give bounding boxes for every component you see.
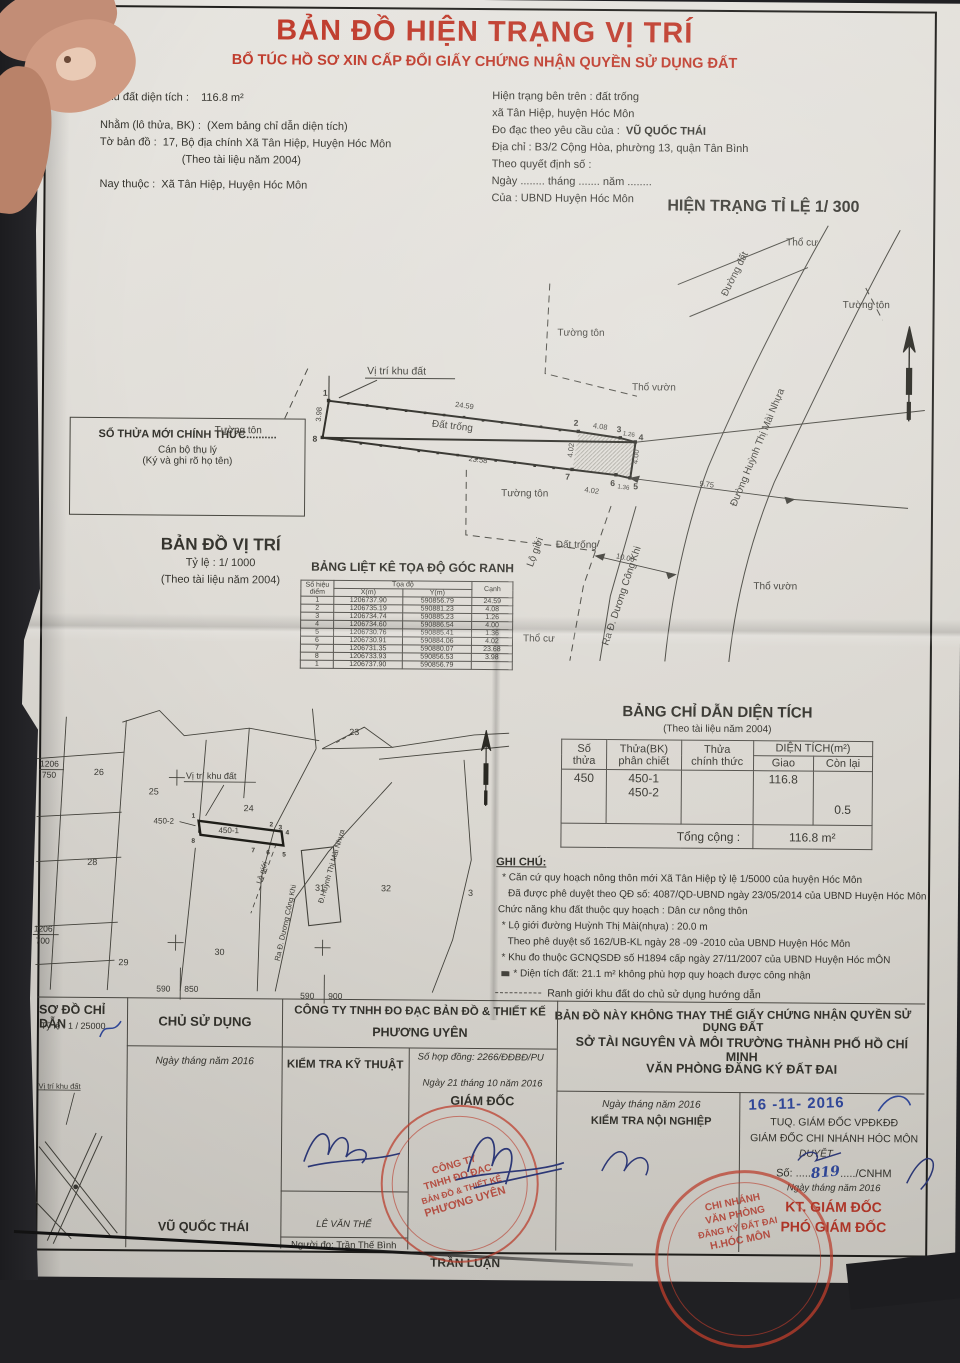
- location-map-note: (Theo tài liệu năm 2004): [110, 571, 330, 590]
- legend-square-icon: [501, 971, 509, 976]
- coord-h-edge: Cạnh: [472, 581, 513, 597]
- svg-text:Tường tôn: Tường tôn: [843, 300, 890, 311]
- svg-text:24.59: 24.59: [455, 400, 475, 411]
- svg-text:8: 8: [191, 838, 195, 845]
- signature-margin-mark: [901, 1131, 953, 1193]
- signature-internal-check: [596, 1133, 671, 1184]
- area-cell-bk1: 450-1: [628, 771, 659, 785]
- svg-text:4.02: 4.02: [565, 442, 576, 458]
- note-line: * Diện tích đất: 21.1 m² không phù hợp q…: [513, 968, 810, 981]
- request-label: Đo đạc theo yêu cầu của :: [492, 124, 620, 137]
- requester-name: VŨ QUỐC THÁI: [626, 125, 706, 138]
- svg-text:700: 700: [36, 936, 51, 946]
- area-value: 116.8 m²: [201, 92, 244, 104]
- svg-text:5: 5: [282, 851, 286, 858]
- north-arrow-icon: [481, 730, 491, 806]
- svg-text:3: 3: [468, 888, 473, 898]
- official-parcel-number-box: SỐ THỬA MỚI CHÍNH THỨC.......... Cán bộ …: [69, 417, 306, 517]
- index-sketch-label: Vị trí khu đất: [38, 1082, 81, 1091]
- parcel-info-left: Khu đất diện tích : 116.8 m² Nhằm (lô th…: [99, 89, 500, 196]
- svg-text:24: 24: [244, 803, 254, 813]
- location-map-title: BẢN ĐỒ VỊ TRÍ: [111, 534, 331, 556]
- official-box-title: SỐ THỬA MỚI CHÍNH THỨC..........: [71, 428, 305, 442]
- document-title: BẢN ĐỒ HIỆN TRẠNG VỊ TRÍ: [175, 14, 795, 52]
- approve-line1: TUQ. GIÁM ĐỐC VPĐKĐĐ: [744, 1116, 924, 1129]
- svg-text:3: 3: [278, 824, 282, 831]
- svg-text:2: 2: [270, 821, 274, 828]
- director-date: Ngày 21 tháng 10 năm 2016: [410, 1077, 554, 1089]
- svg-text:4.08: 4.08: [592, 421, 608, 432]
- svg-text:8: 8: [313, 434, 318, 444]
- area-h: phân chiết: [618, 755, 669, 767]
- coord-cell: 3: [301, 612, 334, 620]
- cadastral-location-map: 123 456 78 26 25 28 29 30 23 24 31 32 3 …: [32, 697, 509, 1006]
- svg-text:1.26: 1.26: [622, 430, 635, 439]
- svg-text:23.58: 23.58: [468, 454, 488, 465]
- scanned-map-document: BẢN ĐỒ HIỆN TRẠNG VỊ TRÍ BỔ TÚC HỒ SƠ XI…: [0, 0, 960, 1284]
- area-cell-ct: [681, 770, 754, 825]
- svg-text:Đường đất: Đường đất: [719, 249, 751, 298]
- area-h: chính thức: [691, 755, 743, 767]
- coord-cell: 1: [300, 660, 333, 668]
- svg-text:6: 6: [610, 478, 615, 488]
- coord-h-point2: điểm: [310, 588, 325, 595]
- svg-text:450-1: 450-1: [218, 826, 239, 835]
- coord-cell: 5: [301, 628, 334, 636]
- notes-block: GHI CHÚ: * Căn cứ quy hoạch nông thôn mớ…: [495, 854, 932, 1004]
- svg-text:850: 850: [184, 984, 199, 994]
- area-h-conlai: Còn lại: [813, 756, 872, 771]
- coord-cell: 4: [301, 620, 334, 628]
- area-h-giao: Giao: [753, 756, 813, 771]
- svg-text:26: 26: [94, 767, 104, 777]
- fingernail-spot: [64, 56, 71, 63]
- svg-text:Đất trống: Đất trống: [431, 418, 473, 435]
- svg-text:4: 4: [639, 432, 644, 442]
- coord-cell: 7: [300, 644, 333, 652]
- owner-header: CHỦ SỬ DỤNG: [129, 1013, 281, 1029]
- area-h: Thửa(BK): [620, 743, 668, 755]
- dept-line2: VĂN PHÒNG ĐĂNG KÝ ĐẤT ĐAI: [561, 1061, 923, 1078]
- index-sketch-site-dot: [73, 1184, 78, 1189]
- area-h-dien-tich: DIỆN TÍCH(m²): [753, 741, 872, 757]
- svg-text:3.98: 3.98: [314, 407, 324, 422]
- sheet-value: 17, Bộ địa chính Xã Tân Hiệp, Huyện Hóc …: [163, 136, 392, 150]
- svg-text:7: 7: [565, 472, 570, 482]
- area-h: Số: [577, 742, 591, 754]
- internal-check-header: KIỂM TRA NỘI NGHIỆP: [566, 1115, 736, 1128]
- svg-text:Vị trí khu đất: Vị trí khu đất: [367, 365, 426, 377]
- owner-name: VŨ QUỐC THÁI: [127, 1219, 279, 1234]
- svg-text:25: 25: [149, 786, 159, 796]
- area-h: Thửa: [704, 743, 730, 755]
- svg-text:Thổ vườn: Thổ vườn: [632, 381, 676, 393]
- sheet-label: Tờ bản đồ :: [100, 136, 157, 148]
- coord-cell: 590856.79: [402, 661, 471, 670]
- grid-coordinate-labels: 1206 750 1206 700 590 850 590 900: [33, 759, 344, 1001]
- parcel-label: Nhằm (lô thửa, BK) :: [100, 119, 201, 132]
- svg-text:9.75: 9.75: [699, 479, 715, 490]
- parcel-value: (Xem bảng chỉ dẫn diện tích): [207, 120, 348, 133]
- location-map-heading: BẢN ĐỒ VỊ TRÍ Tỷ lệ : 1/ 1000 (Theo tài …: [110, 534, 330, 590]
- approve-line2: GIÁM ĐỐC CHI NHÁNH HÓC MÔN: [744, 1132, 924, 1145]
- coord-table: Số hiệu điểm Tọa độ Cạnh X(m) Y(m) 11206…: [300, 580, 514, 671]
- coord-cell: [471, 661, 512, 669]
- area-total-label: Tổng cộng :: [561, 823, 753, 849]
- signature-duyet-check: [796, 1144, 844, 1166]
- signature-director: [444, 1110, 570, 1196]
- cadastral-road-labels: Lộ giới Đ.Huỳnh Thị Mài Nhựa Ra Đ. Dương…: [254, 827, 347, 962]
- svg-text:Lộ giới: Lộ giới: [254, 860, 269, 885]
- sheet-note: (Theo tài liệu năm 2004): [100, 151, 500, 171]
- coord-row: 11206737.90590856.79: [300, 660, 512, 670]
- signature-tech-check: [296, 1107, 407, 1178]
- tech-check-header: KIỂM TRA KỸ THUẬT: [284, 1058, 407, 1071]
- svg-text:23: 23: [349, 727, 359, 737]
- area-cell-conlai: 0.5: [813, 771, 872, 825]
- svg-text:590: 590: [156, 983, 171, 993]
- svg-text:Tường tôn: Tường tôn: [557, 328, 604, 339]
- area-table-title: BẢNG CHỈ DẪN DIỆN TÍCH: [561, 703, 873, 722]
- company-name-line1: CÔNG TY TNHH ĐO ĐẠC BẢN ĐỒ & THIẾT KẾ: [284, 1004, 556, 1018]
- svg-text:Thổ cư: Thổ cư: [523, 632, 555, 644]
- dimension-lines: [595, 476, 794, 580]
- svg-text:29: 29: [118, 957, 128, 967]
- area-cell-giao: 116.8: [753, 771, 814, 825]
- svg-text:1206: 1206: [34, 924, 53, 934]
- svg-text:Đ.Huỳnh Thị Mài Nhựa: Đ.Huỳnh Thị Mài Nhựa: [316, 828, 347, 905]
- svg-text:Đất trống: Đất trống: [556, 539, 597, 551]
- parcel-info-right: Hiện trạng bên trên : đất trống xã Tân H…: [491, 88, 924, 210]
- svg-text:3: 3: [617, 424, 622, 434]
- internal-date: Ngày tháng năm 2016: [566, 1099, 736, 1111]
- now-label: Nay thuộc :: [100, 178, 156, 190]
- north-arrow-icon: [903, 326, 916, 421]
- svg-text:5: 5: [633, 481, 638, 491]
- company-name-line2: PHƯƠNG UYÊN: [284, 1024, 556, 1040]
- svg-text:450-2: 450-2: [154, 816, 175, 825]
- tech-name: LÊ VĂN THẾ: [282, 1218, 405, 1230]
- cadastral-boundaries: [32, 707, 509, 1006]
- coord-table-title: BẢNG LIỆT KÊ TỌA ĐỘ GÓC RANH: [303, 560, 523, 576]
- svg-text:1206: 1206: [40, 759, 59, 769]
- svg-text:4.00: 4.00: [630, 449, 641, 465]
- area-index-table: Sốthửa Thửa(BK)phân chiết Thửachính thức…: [560, 739, 873, 850]
- svg-text:Lộ giới: Lộ giới: [525, 536, 546, 568]
- svg-text:Thổ cư: Thổ cư: [786, 236, 818, 248]
- office-stamp-text: CHI NHÁNH VĂN PHÒNG ĐĂNG KÝ ĐẤT ĐAI H.HÓ…: [643, 1158, 846, 1361]
- disclaimer-line: BẢN ĐỒ NÀY KHÔNG THAY THẾ GIẤY CHỨNG NHẬ…: [537, 1009, 929, 1034]
- svg-text:Vị trí khu đất: Vị trí khu đất: [186, 771, 237, 781]
- index-sketch-map: Vị trí khu đất: [33, 1037, 127, 1246]
- svg-text:Đường Huỳnh Thị Mài Nhựa: Đường Huỳnh Thị Mài Nhựa: [729, 387, 788, 508]
- svg-text:30: 30: [215, 947, 225, 957]
- index-sketch-leader: [66, 1093, 74, 1125]
- svg-text:4: 4: [285, 829, 289, 836]
- location-map-scale: Tỷ lệ : 1/ 1000: [111, 554, 331, 573]
- pen-arrow-icon: [876, 1089, 916, 1115]
- now-value: Xã Tân Hiệp, Huyện Hóc Môn: [161, 178, 307, 191]
- coord-cell: 1206737.90: [333, 660, 402, 669]
- svg-text:6: 6: [266, 849, 270, 856]
- area-h: thửa: [573, 754, 596, 766]
- area-total-value: 116.8 m²: [753, 825, 873, 850]
- area-cell-so-thua: 450: [561, 769, 606, 823]
- svg-text:1: 1: [192, 813, 196, 820]
- boundary-legend-text: Ranh giới khu đất do chủ sử dụng hướng d…: [547, 988, 761, 1002]
- svg-text:32: 32: [381, 883, 391, 893]
- svg-text:1: 1: [323, 388, 328, 398]
- approve-so-suffix: ...../CNHM: [840, 1168, 891, 1180]
- svg-text:Thổ vườn: Thổ vườn: [753, 580, 797, 592]
- svg-text:750: 750: [42, 770, 57, 780]
- svg-text:Tường tôn: Tường tôn: [501, 488, 548, 499]
- area-cell-bk2: 450-2: [628, 785, 659, 799]
- owner-date: Ngày tháng năm 2016: [129, 1055, 281, 1067]
- contract-number: Số hợp đồng: 2266/ĐĐBĐ/PU: [405, 1051, 557, 1063]
- coord-cell: 6: [300, 636, 333, 644]
- svg-text:2: 2: [574, 418, 579, 428]
- svg-text:1.36: 1.36: [617, 483, 630, 492]
- svg-text:4.02: 4.02: [584, 485, 600, 496]
- svg-text:28: 28: [87, 857, 97, 867]
- official-box-sign-note: (Ký và ghi rõ họ tên): [70, 455, 304, 468]
- pen-mark-icon: [97, 1017, 125, 1043]
- svg-text:7: 7: [251, 847, 255, 854]
- coord-cell: 2: [301, 604, 334, 612]
- coord-cell: 1: [301, 596, 334, 604]
- coord-cell: 8: [300, 652, 333, 660]
- dashed-boundary-icon: [495, 992, 541, 993]
- office-round-stamp: CHI NHÁNH VĂN PHÒNG ĐĂNG KÝ ĐẤT ĐAI H.HÓ…: [654, 1169, 833, 1348]
- svg-text:Ra Đ. Dương Công Khi: Ra Đ. Dương Công Khi: [273, 884, 299, 962]
- site-pointer: Vị trí khu đất: [339, 365, 455, 399]
